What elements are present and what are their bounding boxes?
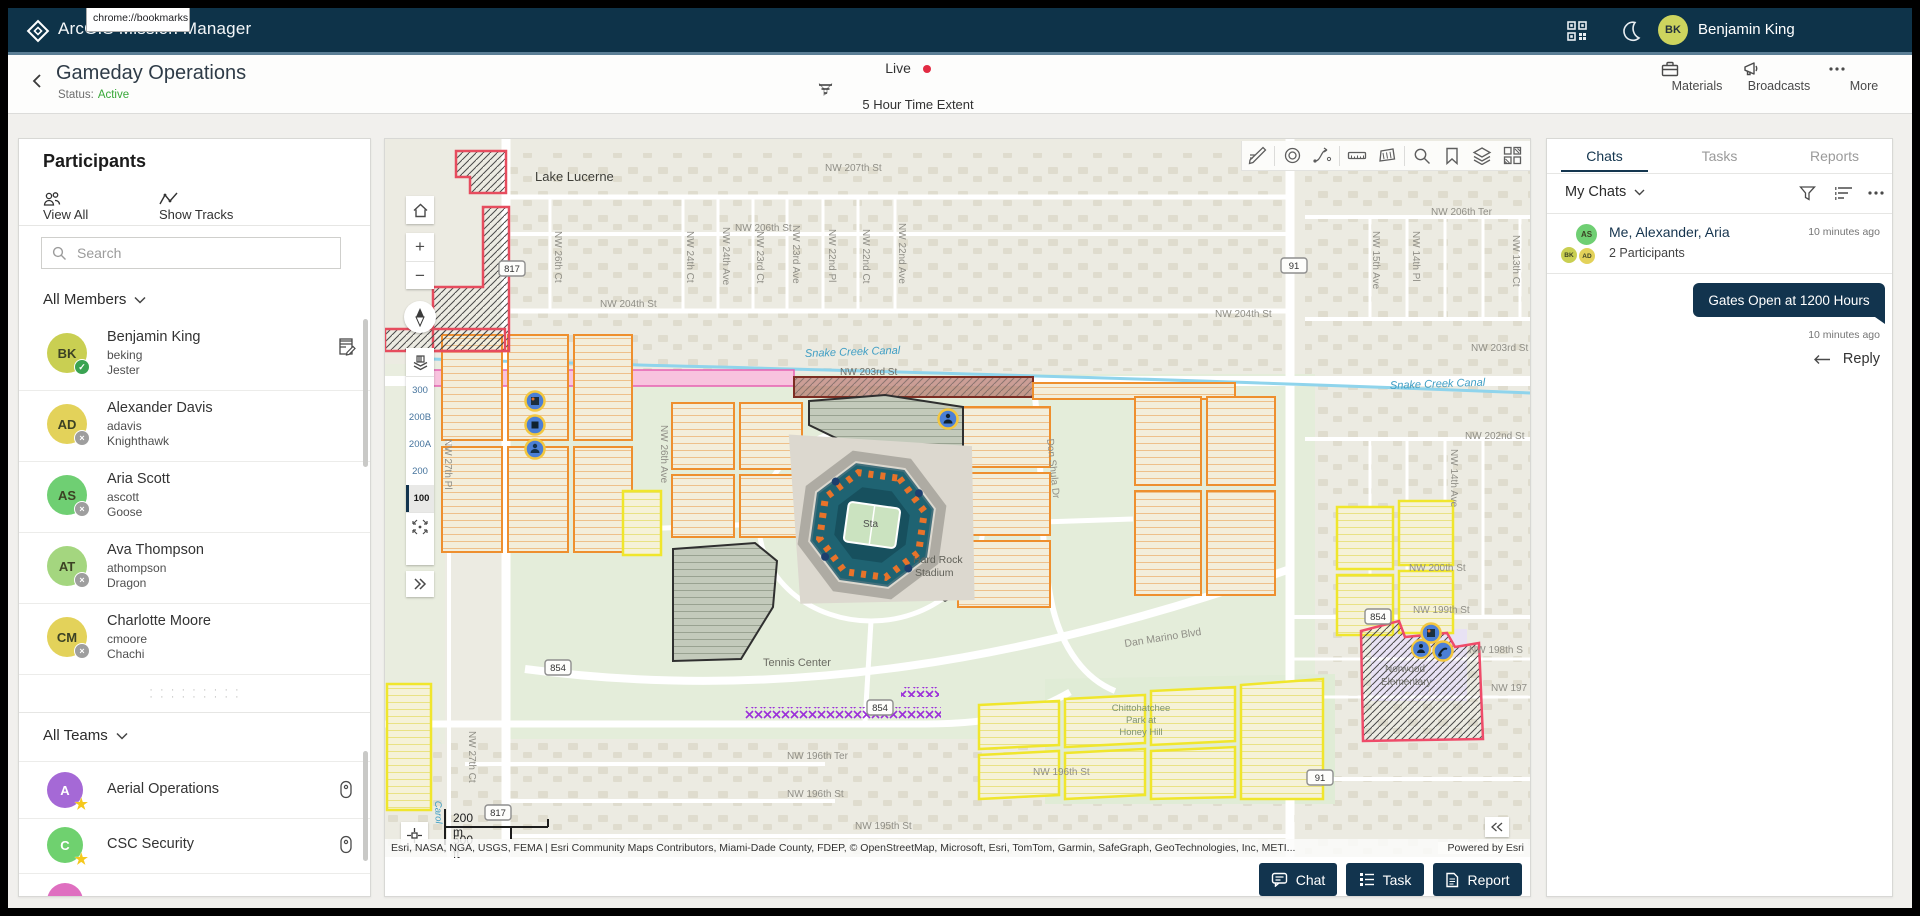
member-username: cmoore [107, 632, 147, 646]
svg-text:Norwood: Norwood [1385, 664, 1425, 675]
team-avatar: C ★ [47, 827, 83, 863]
star-badge: ★ [75, 850, 88, 868]
marker-single-north[interactable] [939, 410, 958, 429]
svg-text:NW 15th Ave: NW 15th Ave [1370, 231, 1381, 290]
live-label: Live [885, 60, 911, 76]
route-icon[interactable] [1307, 142, 1337, 170]
map-attribution: Esri, NASA, NGA, USGS, FEMA | Esri Commu… [385, 839, 1530, 857]
svg-text:91: 91 [1289, 261, 1300, 272]
svg-text:NW 24th Ct: NW 24th Ct [684, 231, 695, 283]
member-username: athompson [107, 561, 166, 575]
member-name: Charlotte Moore [107, 613, 211, 629]
svg-text:Lake Lucerne: Lake Lucerne [535, 169, 614, 184]
participants-search [41, 237, 341, 269]
zoom-control: + − [406, 233, 434, 289]
avatar-initials: BK [1564, 252, 1573, 259]
avatar-initials: CM [57, 630, 77, 645]
panel-resize-handle[interactable]: · · · · · · · · · · · · · · · · · · [19, 674, 371, 712]
svg-text:Honey Hill: Honey Hill [1119, 727, 1162, 738]
avatar-initials: AS [1581, 230, 1592, 239]
basemap-icon[interactable] [1497, 142, 1527, 170]
tab-tasks-label: Tasks [1702, 148, 1738, 164]
team-initial: A [60, 783, 69, 798]
member-name: Ava Thompson [107, 542, 204, 558]
avatar-initials: BK [58, 346, 77, 361]
svg-text:NW 27th Pl: NW 27th Pl [442, 439, 453, 490]
svg-text:NW 196th St: NW 196th St [787, 789, 844, 800]
team-row-partial[interactable] [19, 873, 371, 897]
svg-text:Chittohatchee: Chittohatchee [1112, 703, 1171, 714]
scrollbar-thumb[interactable] [363, 319, 368, 467]
hard-rock-stadium[interactable]: Sta [766, 421, 996, 628]
reply-button[interactable]: Reply [1813, 351, 1880, 367]
expand-panel-button[interactable] [406, 571, 434, 597]
thread-participants: 2 Participants [1609, 246, 1685, 260]
handle-dots: · · · · · · · · · [19, 694, 371, 701]
svg-text:NW 200th St: NW 200th St [1409, 563, 1466, 574]
members-filter-dropdown[interactable]: All Members [43, 291, 146, 308]
chat-button[interactable]: Chat [1259, 863, 1337, 896]
report-button-label: Report [1467, 872, 1509, 888]
tracker-icon[interactable] [339, 780, 353, 800]
people-icon [43, 191, 61, 207]
top-app-bar: ArcGIS Mission Manager bookmarks chrome:… [8, 8, 1912, 52]
app-window: ArcGIS Mission Manager bookmarks chrome:… [8, 8, 1912, 908]
time-extent-label: 5 Hour Time Extent [862, 97, 973, 112]
megaphone-icon [1743, 61, 1761, 77]
avatar: AT × [47, 546, 87, 586]
user-avatar-initials: BK [1665, 24, 1681, 36]
divider [19, 712, 370, 713]
member-row-ava-thompson[interactable]: AT × Ava Thompson athompson Dragon [19, 532, 371, 604]
floor-picker: 300 200B 200A 200 100 [406, 348, 434, 565]
browser-tooltip: bookmarks chrome://bookmarks [86, 8, 190, 32]
members-filter-label: All Members [43, 291, 126, 308]
team-row-aerial-operations[interactable]: A ★ Aerial Operations [19, 761, 371, 819]
participants-panel: Participants View All Show Tracks All Me… [18, 138, 371, 897]
tab-tasks[interactable]: Tasks [1662, 139, 1777, 172]
search-icon[interactable] [1407, 142, 1437, 170]
svg-text:NW 203rd St: NW 203rd St [1471, 343, 1528, 354]
svg-text:NW 203rd St: NW 203rd St [840, 367, 897, 378]
collapse-attribution-button[interactable] [1485, 817, 1509, 837]
chat-message-text: Gates Open at 1200 Hours [1708, 293, 1869, 308]
time-extent-control[interactable]: 5 Hour Time Extent [818, 82, 1018, 112]
svg-text:NW 206th Ter: NW 206th Ter [1431, 207, 1493, 218]
member-row-benjamin-king[interactable]: BK ✓ Benjamin King beking Jester [19, 319, 371, 391]
floor-100-selected[interactable]: 100 [406, 485, 434, 512]
filter-icon[interactable] [1799, 185, 1816, 202]
materials-label: Materials [1661, 79, 1733, 93]
svg-text:NW 23rd Ave: NW 23rd Ave [790, 225, 801, 284]
svg-text:NW 22nd Ct: NW 22nd Ct [860, 229, 871, 284]
svg-text:Hard Rock: Hard Rock [913, 554, 963, 566]
mission-header: Gameday Operations Status:Active Live 5 … [8, 52, 1912, 114]
team-name: Aerial Operations [107, 781, 219, 797]
briefcase-icon [1661, 61, 1679, 77]
live-indicator: Live [848, 60, 968, 76]
reply-label: Reply [1843, 351, 1880, 367]
qr-code-icon[interactable] [1566, 20, 1588, 42]
member-note-icon[interactable] [337, 337, 357, 357]
chevron-down-icon [116, 732, 128, 740]
divider [19, 225, 370, 226]
svg-text:NW 199th St: NW 199th St [1413, 605, 1470, 616]
svg-text:NW 198th S: NW 198th S [1469, 645, 1523, 656]
sketch-icon[interactable] [1242, 142, 1272, 170]
chat-thread-item[interactable]: AS BK AD Me, Alexander, Aria 10 minutes … [1547, 214, 1892, 274]
chat-message-bubble[interactable]: Gates Open at 1200 Hours [1693, 283, 1885, 317]
member-name: Aria Scott [107, 471, 170, 487]
tab-chats[interactable]: Chats [1547, 139, 1662, 172]
marker-cluster-west[interactable] [526, 392, 545, 459]
report-button[interactable]: Report [1433, 863, 1522, 896]
avatar-initials: AS [58, 488, 76, 503]
status-offline-badge: × [74, 572, 90, 588]
svg-text:NW 26th Ct: NW 26th Ct [552, 231, 563, 283]
avatar: CM × [47, 617, 87, 657]
message-time: 10 minutes ago [1808, 329, 1880, 341]
avatar: AD × [47, 404, 87, 444]
team-avatar [47, 883, 83, 897]
thread-title: Me, Alexander, Aria [1609, 224, 1730, 240]
avatar-bk: BK [1560, 246, 1578, 264]
member-username: beking [107, 348, 142, 362]
home-button[interactable] [406, 196, 434, 224]
measure-distance-icon[interactable] [1342, 142, 1372, 170]
materials-button[interactable]: Materials [1661, 61, 1733, 93]
bookmark-icon[interactable] [1437, 142, 1467, 170]
member-callsign: Jester [107, 363, 140, 377]
svg-text:NW 202nd St: NW 202nd St [1465, 431, 1525, 442]
zoom-out-button[interactable]: − [406, 262, 434, 290]
member-row-alexander-davis[interactable]: AD × Alexander Davis adavis Knighthawk [19, 390, 371, 462]
svg-text:854: 854 [872, 703, 888, 714]
member-name: Alexander Davis [107, 400, 213, 416]
status-offline-badge: × [74, 501, 90, 517]
team-row-csc-security[interactable]: C ★ CSC Security [19, 817, 371, 874]
svg-text:NW 196th St: NW 196th St [1033, 767, 1090, 778]
avatar: BK ✓ [47, 333, 87, 373]
brown-hatched-overlay[interactable] [794, 377, 1033, 397]
my-chats-label: My Chats [1565, 184, 1626, 200]
team-avatar: A ★ [47, 772, 83, 808]
more-button[interactable]: More [1828, 61, 1900, 93]
floor-200B[interactable]: 200B [406, 404, 434, 431]
view-all-button[interactable]: View All [43, 191, 88, 215]
svg-text:NW 24th Ave: NW 24th Ave [720, 227, 731, 286]
stadium-partial-label: Sta [863, 519, 878, 530]
svg-text:NW 204th St: NW 204th St [1215, 309, 1272, 320]
tracker-icon[interactable] [339, 835, 353, 855]
svg-text:NW 26th Ave: NW 26th Ave [658, 425, 669, 484]
member-callsign: Chachi [107, 647, 144, 661]
svg-text:NW 196th Ter: NW 196th Ter [787, 751, 849, 762]
svg-text:NW 14th Pl: NW 14th Pl [1410, 231, 1421, 282]
attribution-text: Esri, NASA, NGA, USGS, FEMA | Esri Commu… [391, 842, 1295, 854]
tab-reports[interactable]: Reports [1777, 139, 1892, 172]
teams-filter-dropdown[interactable]: All Teams [43, 727, 128, 744]
view-all-label: View All [43, 207, 88, 222]
live-dot [923, 65, 931, 73]
svg-text:Elementary: Elementary [1381, 677, 1432, 688]
svg-text:Stadium: Stadium [915, 567, 954, 579]
svg-text:Tennis Center: Tennis Center [763, 657, 831, 669]
floor-300[interactable]: 300 [406, 377, 434, 404]
avatar: AS × [47, 475, 87, 515]
my-chats-dropdown[interactable]: My Chats [1565, 184, 1645, 200]
tab-chats-label: Chats [1586, 148, 1623, 164]
measure-area-icon[interactable] [1372, 142, 1402, 170]
sort-icon[interactable] [1835, 186, 1853, 201]
zoom-in-button[interactable]: + [406, 233, 434, 262]
svg-text:NW 195th St: NW 195th St [855, 821, 912, 832]
svg-text:NW 27th Ct: NW 27th Ct [466, 731, 477, 783]
compass[interactable] [404, 301, 436, 333]
target-icon[interactable] [1277, 142, 1307, 170]
status-offline-badge: × [74, 643, 90, 659]
svg-text:91: 91 [1315, 773, 1326, 784]
chat-filter-row: My Chats [1547, 173, 1892, 214]
show-tracks-label: Show Tracks [159, 207, 233, 222]
page-title: Gameday Operations [56, 62, 246, 85]
chat-button-label: Chat [1296, 872, 1326, 888]
member-row-aria-scott[interactable]: AS × Aria Scott ascott Goose [19, 461, 371, 533]
member-callsign: Knighthawk [107, 434, 169, 448]
show-tracks-button[interactable]: Show Tracks [159, 191, 233, 215]
map-panel: Sta 817 854 817 854 854 91 91 Lake Lucer… [384, 138, 1531, 897]
svg-text:NW 13th Ct: NW 13th Ct [1510, 235, 1521, 287]
floors-icon[interactable] [406, 348, 434, 377]
overflow-menu-icon[interactable] [1867, 190, 1885, 196]
svg-text:854: 854 [550, 663, 566, 674]
team-initial: C [60, 838, 69, 853]
member-username: ascott [107, 490, 139, 504]
back-chevron-icon[interactable] [30, 71, 46, 91]
avatar-initials: AT [59, 559, 75, 574]
powered-by-esri: Powered by Esri [1438, 842, 1524, 854]
chevron-down-icon [134, 296, 146, 304]
more-label: More [1828, 79, 1900, 93]
svg-text:854: 854 [1370, 612, 1386, 623]
member-callsign: Dragon [107, 576, 146, 590]
arrow-left-icon [1813, 354, 1831, 365]
map-canvas[interactable]: Sta 817 854 817 854 854 91 91 Lake Lucer… [385, 139, 1530, 857]
chevron-down-icon [1634, 189, 1645, 196]
map-toolbar [1241, 141, 1531, 171]
floor-200[interactable]: 200 [406, 458, 434, 485]
time-extent-icon [818, 82, 833, 97]
status-offline-badge: × [74, 430, 90, 446]
team-name: CSC Security [107, 836, 194, 852]
mission-status: Status:Active [58, 89, 129, 101]
arcgis-mission-logo [25, 18, 51, 44]
svg-text:NW 207th St: NW 207th St [825, 163, 882, 174]
floor-200A[interactable]: 200A [406, 431, 434, 458]
tooltip-line1: bookmarks [93, 8, 183, 11]
participants-title: Participants [43, 151, 146, 172]
purple-x-route-small[interactable] [901, 687, 939, 697]
svg-text:NW 14th Ave: NW 14th Ave [1448, 449, 1459, 508]
member-username: adavis [107, 419, 142, 433]
ellipsis-icon [1828, 61, 1846, 77]
user-avatar[interactable]: BK [1658, 15, 1688, 45]
tooltip-line2: chrome://bookmarks [93, 12, 183, 24]
user-name[interactable]: Benjamin King [1698, 21, 1795, 38]
member-name: Benjamin King [107, 329, 201, 345]
status-value: Active [98, 89, 129, 101]
avatar-initials: AD [1582, 253, 1591, 260]
svg-text:NW 204th St: NW 204th St [600, 299, 657, 310]
task-button-label: Task [1383, 872, 1412, 888]
search-icon [52, 246, 67, 261]
purple-x-route[interactable] [745, 707, 941, 719]
status-label: Status: [58, 89, 94, 101]
star-badge: ★ [75, 795, 88, 813]
task-button[interactable]: Task [1346, 863, 1424, 896]
search-input[interactable] [75, 244, 309, 262]
svg-text:NW 197: NW 197 [1491, 683, 1528, 694]
teams-filter-label: All Teams [43, 727, 108, 744]
chat-panel: Chats Tasks Reports My Chats AS BK AD Me… [1546, 138, 1893, 897]
svg-text:817: 817 [504, 264, 520, 275]
broadcasts-label: Broadcasts [1743, 79, 1815, 93]
svg-text:NW 23rd Ct: NW 23rd Ct [754, 231, 765, 283]
svg-text:NW 22nd Ave: NW 22nd Ave [896, 223, 907, 284]
tracks-icon [159, 191, 179, 207]
avatar-initials: AD [58, 417, 77, 432]
thread-time: 10 minutes ago [1808, 226, 1880, 238]
member-callsign: Goose [107, 505, 142, 519]
avatar-ad: AD [1578, 247, 1596, 265]
broadcasts-button[interactable]: Broadcasts [1743, 61, 1815, 93]
tab-reports-label: Reports [1810, 148, 1859, 164]
layers-icon[interactable] [1467, 142, 1497, 170]
svg-text:Park at: Park at [1126, 715, 1156, 726]
dark-mode-moon-icon[interactable] [1620, 20, 1642, 42]
svg-text:NW 22nd Pl: NW 22nd Pl [826, 229, 837, 282]
scrollbar-thumb[interactable] [363, 751, 368, 861]
avatar-as: AS [1575, 223, 1598, 246]
fit-extent-icon[interactable] [406, 512, 434, 541]
status-online-badge: ✓ [74, 359, 90, 375]
member-row-charlotte-moore[interactable]: CM × Charlotte Moore cmoore Chachi [19, 603, 371, 675]
